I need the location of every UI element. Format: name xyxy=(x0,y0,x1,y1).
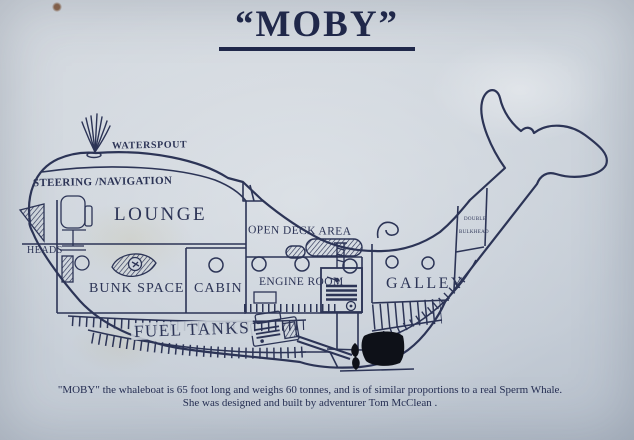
life-raft-large xyxy=(306,239,362,256)
life-rafts xyxy=(286,239,362,258)
dorsal-hump xyxy=(378,222,399,238)
porthole-galley-1 xyxy=(386,256,398,268)
label-fuel-tanks: FUEL TANKS xyxy=(131,319,254,340)
label-double-bulkhead-line1: DOUBLE xyxy=(464,217,486,222)
bunk-details xyxy=(62,254,156,282)
porthole-bunk xyxy=(75,256,89,270)
fuel-tank-hatch-bottom xyxy=(92,338,303,353)
ladder xyxy=(62,256,73,282)
helm-seat-back xyxy=(61,196,85,228)
porthole-galley-2 xyxy=(422,257,434,269)
porthole-engine-2 xyxy=(295,257,309,271)
keel-box xyxy=(327,313,362,350)
pectoral-fin xyxy=(362,332,405,366)
label-open-deck-area: OPEN DECK AREA xyxy=(248,225,352,238)
engine-block xyxy=(321,268,362,312)
generator-unit xyxy=(249,309,299,347)
waterspout-spray xyxy=(82,114,110,158)
label-galley: GALLEY xyxy=(386,276,465,292)
steering-console xyxy=(20,196,92,250)
label-double-bulkhead-line2: BULKHEAD xyxy=(459,230,489,235)
label-bunk-space: BUNK SPACE xyxy=(89,282,184,296)
prop-shaft xyxy=(297,336,352,359)
porthole-cabin xyxy=(209,258,223,272)
label-engine-room: ENGINE ROOM xyxy=(259,277,344,289)
porthole-engine-1 xyxy=(252,257,266,271)
whale-diagram xyxy=(0,0,634,440)
console-window xyxy=(20,204,44,241)
helm-seat-pedestal xyxy=(60,230,86,250)
caption-line-2: She was designed and built by adventurer… xyxy=(0,397,620,410)
galley-walls xyxy=(372,244,449,303)
label-heads: HEADS xyxy=(27,246,63,256)
engine-room-locker xyxy=(254,292,276,303)
poster-photo: “MOBY” xyxy=(0,0,634,440)
label-waterspout: WATERSPOUT xyxy=(112,140,187,151)
caption: "MOBY" the whaleboat is 65 foot long and… xyxy=(0,384,620,410)
label-cabin: CABIN xyxy=(194,282,243,296)
caption-line-1: "MOBY" the whaleboat is 65 foot long and… xyxy=(0,384,620,397)
helm-seat-arm xyxy=(85,206,92,226)
porthole-engine-3 xyxy=(343,259,357,273)
label-lounge: LOUNGE xyxy=(114,205,207,224)
life-raft-small xyxy=(286,246,305,258)
